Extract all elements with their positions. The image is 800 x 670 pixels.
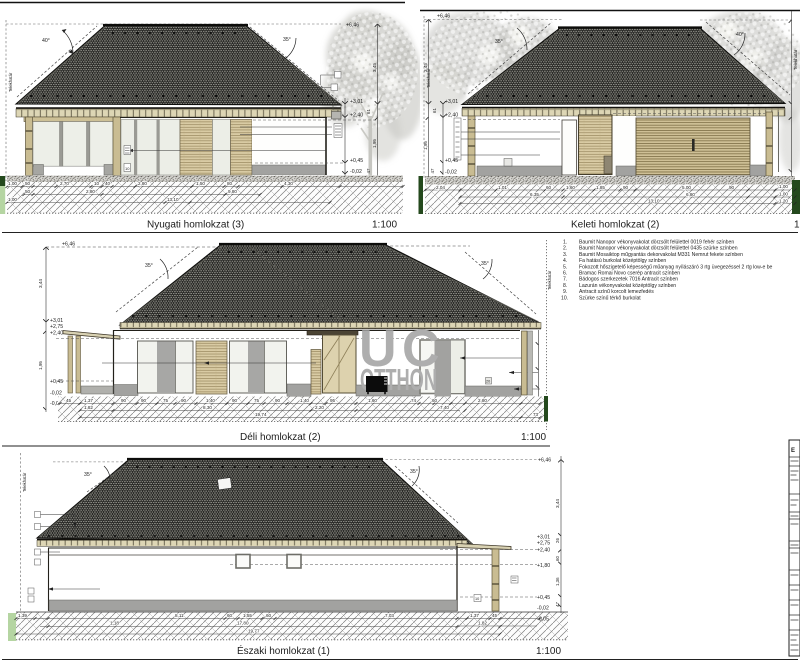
svg-text:73: 73 [533,412,539,417]
svg-text:1,36: 1,36 [555,577,560,586]
svg-text:75: 75 [163,398,169,403]
svg-text:90: 90 [623,185,629,190]
svg-text:Telekhatár: Telekhatár [8,72,13,92]
svg-text:+1,80: +1,80 [537,563,550,569]
svg-text:+2,75: +2,75 [50,324,63,330]
svg-text:Telekhatár: Telekhatár [793,49,798,70]
svg-text:+0,45: +0,45 [350,158,363,164]
svg-text:50: 50 [25,181,31,186]
svg-text:-0,02: -0,02 [350,169,362,175]
svg-text:9,80: 9,80 [228,189,237,194]
svg-text:Baumit Nanopor vékonyvakolat d: Baumit Nanopor vékonyvakolat dörzsölt fe… [579,246,738,252]
svg-text:1,55: 1,55 [243,613,252,618]
svg-text:10: 10 [125,166,130,171]
svg-text:6.: 6. [563,271,567,277]
svg-text:35°: 35° [145,263,153,269]
svg-text:1:100: 1:100 [372,220,397,231]
svg-text:3,44: 3,44 [38,279,43,288]
svg-text:4.: 4. [563,258,567,264]
svg-text:1:100: 1:100 [521,432,546,443]
svg-text:1.: 1. [563,240,567,246]
svg-text:+3,01: +3,01 [350,99,363,105]
svg-text:35°: 35° [495,39,503,45]
svg-text:+2,75: +2,75 [537,541,550,547]
svg-text:10.: 10. [561,295,568,301]
svg-text:+2,40: +2,40 [50,331,63,337]
svg-text:1,00: 1,00 [779,192,788,197]
svg-text:+6,46: +6,46 [538,458,551,464]
svg-text:2,80: 2,80 [478,398,487,403]
svg-text:+6,46: +6,46 [437,14,450,20]
svg-text:1,85: 1,85 [596,185,605,190]
svg-text:+0,45: +0,45 [537,595,550,601]
svg-text:Antracit színű korcolt lemezfe: Antracit színű korcolt lemezfedés [579,289,654,295]
svg-text:1,40: 1,40 [300,398,309,403]
svg-text:8.: 8. [563,283,567,289]
svg-text:+6,46: +6,46 [346,23,359,29]
svg-text:60: 60 [432,398,438,403]
svg-text:61: 61 [432,108,437,113]
svg-text:1,40: 1,40 [206,398,215,403]
svg-text:1,00: 1,00 [8,197,17,202]
svg-text:Baumit Mosaiktop műgyantás dek: Baumit Mosaiktop műgyantás dekorvakolat … [579,252,743,258]
svg-text:8,30: 8,30 [203,405,212,410]
svg-text:47: 47 [430,168,435,173]
svg-text:45: 45 [66,398,72,403]
svg-text:47: 47 [555,602,560,607]
svg-text:40: 40 [105,181,111,186]
svg-text:1,60: 1,60 [368,398,377,403]
svg-text:1,50: 1,50 [196,181,205,186]
svg-text:1,37: 1,37 [84,398,93,403]
svg-text:1,95: 1,95 [38,361,43,370]
svg-text:3.: 3. [563,252,567,258]
svg-text:Bádogos szerkezetek 7016 Antra: Bádogos szerkezetek 7016 Antracit színbe… [579,277,678,283]
svg-text:Telekhatár: Telekhatár [22,472,27,492]
svg-text:8,11: 8,11 [175,613,184,618]
svg-text:1,20: 1,20 [779,199,788,204]
svg-text:Fokozott hőszigetelő képességű: Fokozott hőszigetelő képességű műanyag n… [579,264,773,270]
svg-text:10: 10 [475,597,479,601]
svg-text:2,80: 2,80 [86,189,95,194]
svg-text:60: 60 [546,185,552,190]
svg-text:Keleti homlokzat (2): Keleti homlokzat (2) [571,220,659,231]
svg-text:2,80: 2,80 [138,181,147,186]
svg-text:90: 90 [275,398,281,403]
svg-text:47: 47 [366,168,371,173]
svg-text:26: 26 [555,538,560,543]
svg-text:9.: 9. [563,289,567,295]
svg-text:+3,01: +3,01 [445,99,458,105]
svg-text:80: 80 [227,181,233,186]
svg-text:74: 74 [411,398,417,403]
svg-text:35°: 35° [481,261,489,267]
svg-text:19,77: 19,77 [248,629,260,634]
svg-text:60: 60 [227,613,233,618]
svg-text:17,80: 17,80 [237,621,249,626]
svg-text:20: 20 [486,380,490,384]
svg-text:40°: 40° [42,38,50,44]
svg-text:6,35: 6,35 [530,192,539,197]
svg-text:90: 90 [121,398,127,403]
svg-text:Nyugati homlokzat (3): Nyugati homlokzat (3) [147,220,244,231]
svg-text:75: 75 [254,398,260,403]
svg-text:Bramac Romai Novo cserép antra: Bramac Romai Novo cserép antracit színbe… [579,271,680,277]
svg-text:+2,40: +2,40 [350,113,363,119]
svg-text:E: E [791,448,795,454]
svg-text:Lazurán vékonyvakolat középtöl: Lazurán vékonyvakolat középtölgy színben [579,283,676,289]
svg-text:+0,45: +0,45 [445,158,458,164]
svg-text:1,01: 1,01 [498,185,507,190]
svg-text:5,00: 5,00 [682,185,691,190]
svg-text:1,00: 1,00 [8,181,17,186]
svg-text:4,30: 4,30 [284,181,293,186]
svg-text:5.: 5. [563,264,567,270]
svg-text:95: 95 [330,398,336,403]
svg-text:+2,40: +2,40 [537,548,550,554]
svg-text:61: 61 [366,109,371,114]
svg-text:-0,02: -0,02 [537,606,549,612]
svg-text:1,60: 1,60 [566,185,575,190]
svg-text:-0,02: -0,02 [50,391,62,397]
svg-text:Déli homlokzat (2): Déli homlokzat (2) [240,432,321,443]
svg-text:10: 10 [94,181,100,186]
svg-text:19,74: 19,74 [255,412,267,417]
svg-text:7.: 7. [563,277,567,283]
svg-text:-0,02: -0,02 [445,170,457,176]
svg-text:Fa hatású burkolat középtölgy: Fa hatású burkolat középtölgy színben [579,258,666,264]
svg-text:3,45: 3,45 [372,63,377,72]
svg-text:40°: 40° [736,32,744,38]
svg-text:90: 90 [141,398,147,403]
svg-text:+2,40: +2,40 [445,113,458,119]
svg-text:1,39: 1,39 [18,613,27,618]
svg-text:1,82: 1,82 [478,621,487,626]
svg-text:2.: 2. [563,246,567,252]
svg-text:35°: 35° [84,472,92,478]
svg-text:60: 60 [266,613,272,618]
svg-text:13,10: 13,10 [167,197,179,202]
svg-text:1,18: 1,18 [110,621,119,626]
svg-text:1,82: 1,82 [84,405,93,410]
svg-text:35°: 35° [410,469,418,475]
svg-text:50: 50 [25,189,31,194]
svg-text:1: 1 [794,220,800,231]
svg-text:90: 90 [232,398,238,403]
svg-text:Szürke színű térkő burkolat: Szürke színű térkő burkolat [579,295,641,301]
svg-text:90: 90 [181,398,187,403]
svg-text:1,95: 1,95 [372,139,377,148]
svg-text:1,37: 1,37 [470,613,479,618]
svg-text:Északi homlokzat (1): Északi homlokzat (1) [237,644,330,657]
svg-text:+6,46: +6,46 [62,242,75,248]
svg-text:1,00: 1,00 [779,184,788,189]
svg-text:2,70: 2,70 [60,181,69,186]
svg-text:13,10: 13,10 [648,199,660,204]
svg-text:Telekhatár: Telekhatár [547,270,552,290]
svg-text:60: 60 [555,556,560,561]
svg-text:35°: 35° [283,37,291,43]
svg-text:90: 90 [729,185,735,190]
svg-text:7,40: 7,40 [440,405,449,410]
svg-text:2,04: 2,04 [436,185,445,190]
svg-text:1,95: 1,95 [423,141,428,150]
svg-text:45: 45 [492,613,498,618]
svg-text:1:100: 1:100 [536,646,561,657]
svg-text:3,45: 3,45 [423,63,428,72]
svg-text:7,03: 7,03 [385,613,394,618]
svg-text:+0,45: +0,45 [50,379,63,385]
svg-text:Baumit Nanopor vékonyvakolat d: Baumit Nanopor vékonyvakolat dörzsölt fe… [579,240,734,246]
svg-text:3,44: 3,44 [555,499,560,508]
svg-text:2,20: 2,20 [315,405,324,410]
svg-text:6,80: 6,80 [686,192,695,197]
